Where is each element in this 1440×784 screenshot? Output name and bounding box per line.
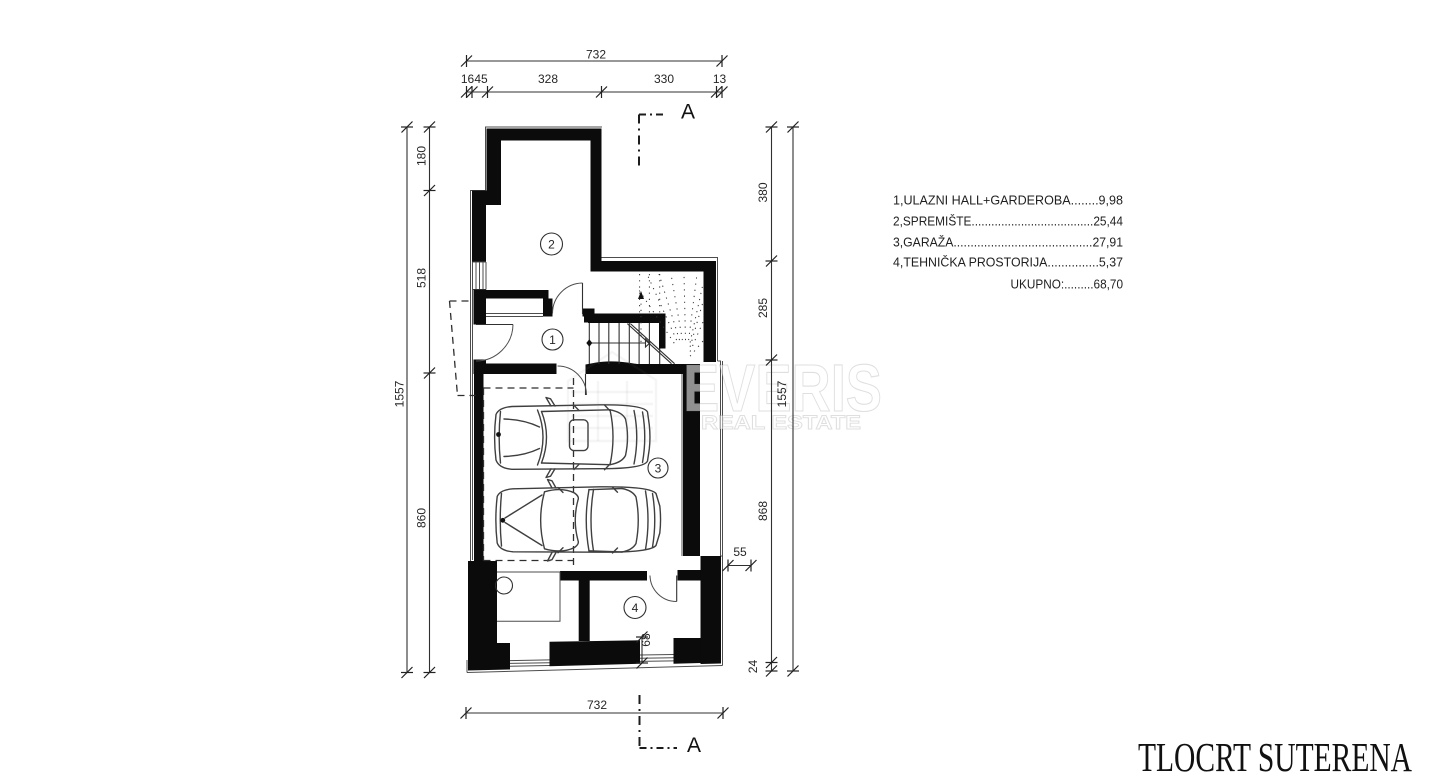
svg-text:3: 3 bbox=[655, 462, 662, 476]
svg-text:732: 732 bbox=[587, 698, 607, 712]
svg-text:1,ULAZNI HALL+GARDEROBA......: 1,ULAZNI HALL+GARDEROBA........9,98 bbox=[893, 193, 1123, 208]
svg-text:330: 330 bbox=[654, 72, 674, 86]
svg-text:1557: 1557 bbox=[393, 380, 407, 407]
svg-text:860: 860 bbox=[415, 508, 429, 528]
svg-text:A: A bbox=[681, 101, 695, 124]
svg-text:1: 1 bbox=[549, 333, 556, 347]
svg-text:868: 868 bbox=[756, 501, 770, 521]
svg-text:55: 55 bbox=[733, 545, 747, 559]
svg-text:3,GARAŽA......................: 3,GARAŽA................................… bbox=[893, 235, 1123, 250]
svg-text:4: 4 bbox=[632, 601, 639, 615]
svg-text:732: 732 bbox=[586, 48, 606, 62]
svg-text:A: A bbox=[687, 734, 701, 757]
svg-text:380: 380 bbox=[756, 182, 770, 202]
svg-text:180: 180 bbox=[415, 146, 429, 166]
svg-text:TLOCRT SUTERENA: TLOCRT SUTERENA bbox=[1138, 734, 1412, 779]
svg-text:REAL ESTATE: REAL ESTATE bbox=[701, 412, 861, 434]
svg-text:24: 24 bbox=[746, 660, 760, 674]
svg-text:328: 328 bbox=[538, 72, 558, 86]
svg-text:4,TEHNIČKA PROSTORIJA........: 4,TEHNIČKA PROSTORIJA...............5,37 bbox=[893, 255, 1123, 270]
svg-text:45: 45 bbox=[474, 72, 488, 86]
svg-text:UKUPNO:.........68,70: UKUPNO:.........68,70 bbox=[1011, 277, 1124, 292]
svg-text:2: 2 bbox=[548, 238, 555, 252]
svg-text:16: 16 bbox=[461, 72, 475, 86]
svg-text:2,SPREMIŠTE...................: 2,SPREMIŠTE.............................… bbox=[893, 214, 1123, 229]
svg-text:285: 285 bbox=[756, 298, 770, 318]
svg-text:1557: 1557 bbox=[775, 380, 789, 407]
svg-text:518: 518 bbox=[415, 268, 429, 288]
svg-text:68: 68 bbox=[639, 633, 653, 647]
svg-text:13: 13 bbox=[713, 72, 727, 86]
